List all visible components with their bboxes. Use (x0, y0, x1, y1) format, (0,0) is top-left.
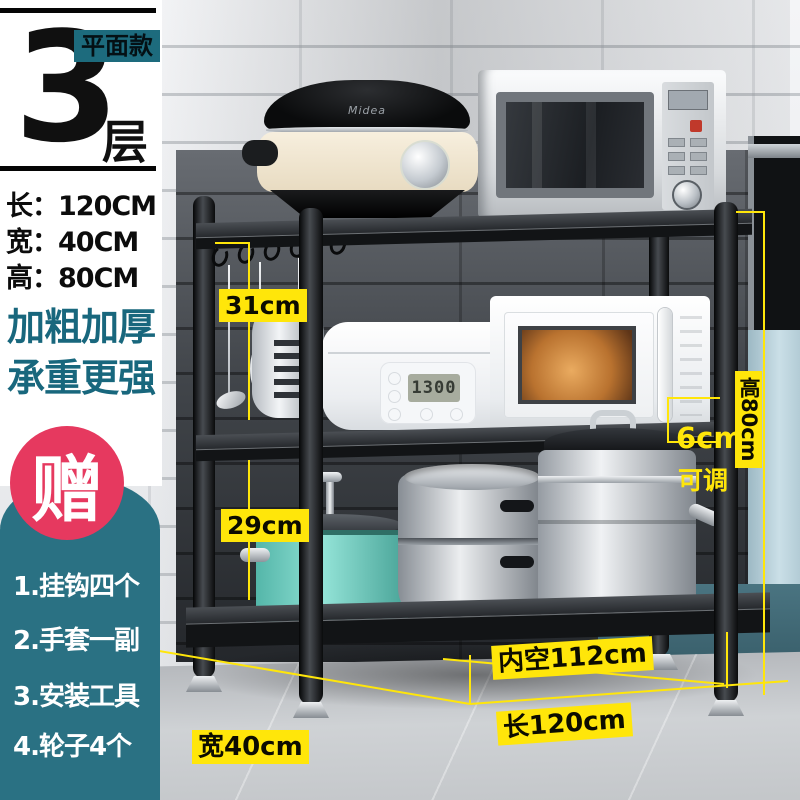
footprint-line (118, 618, 788, 704)
gap-top-label: 31cm (219, 289, 307, 322)
depth-label: 宽40cm (192, 730, 309, 764)
gift-item-4: 4.轮子4个 (13, 726, 163, 763)
style-tag-badge: 平面款 (74, 30, 160, 62)
gift-item-2: 2.手套一副 (13, 620, 163, 657)
dimension-height: 高：80CM (6, 256, 162, 295)
dimension-length: 长：120CM (6, 184, 162, 223)
gift-item-3: 3.安装工具 (13, 676, 163, 713)
divider-line (0, 166, 156, 171)
adjust-note-label: 可调 (678, 461, 728, 497)
gap-bottom-label: 29cm (221, 509, 309, 542)
slogan-line1: 加粗加厚 (0, 296, 162, 351)
gift-badge: 赠 (10, 426, 124, 540)
adjust-value-label: 6cm (676, 421, 744, 455)
gap-top-line (215, 243, 249, 420)
tier-unit: 层 (102, 106, 148, 172)
gift-item-1: 1.挂钩四个 (13, 566, 163, 603)
dimension-width: 宽：40CM (6, 220, 162, 259)
product-showcase: Midea 1300 (0, 0, 800, 800)
slogan-line2: 承重更强 (0, 347, 162, 402)
